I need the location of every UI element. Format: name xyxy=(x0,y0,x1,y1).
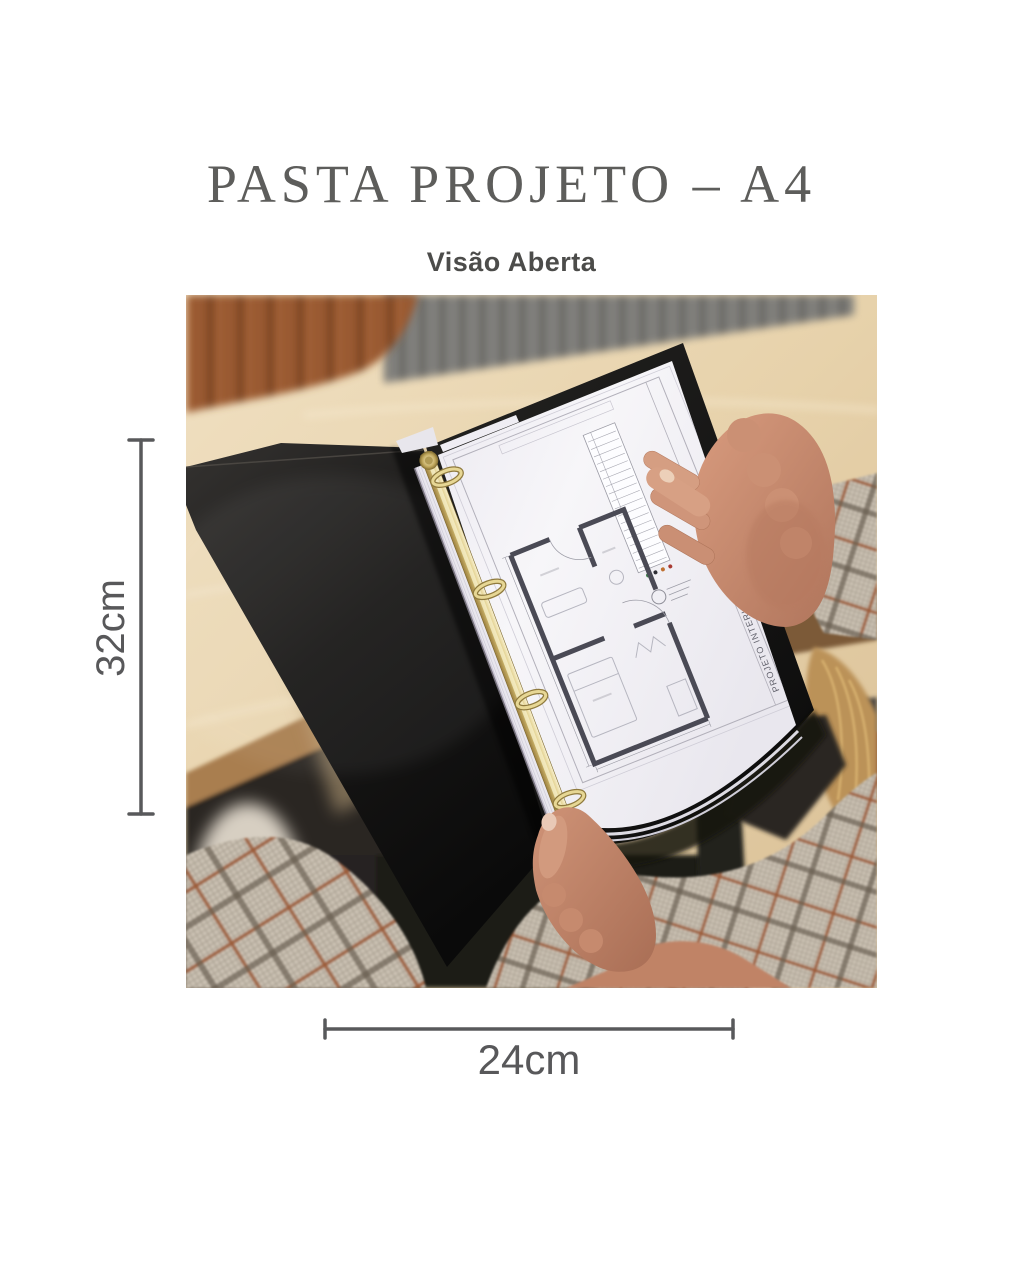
dimension-width-label: 24cm xyxy=(429,1036,629,1084)
binder-photo-illustration: PROJETO INTERIORES RESIDENCIAL xyxy=(186,295,877,988)
product-photo: PROJETO INTERIORES RESIDENCIAL xyxy=(186,295,877,988)
page-subtitle: Visão Aberta xyxy=(0,247,1023,278)
page-title: PASTA PROJETO – A4 xyxy=(0,153,1023,215)
dimension-height-label: 32cm xyxy=(89,568,133,688)
page: PASTA PROJETO – A4 Visão Aberta xyxy=(0,0,1023,1280)
